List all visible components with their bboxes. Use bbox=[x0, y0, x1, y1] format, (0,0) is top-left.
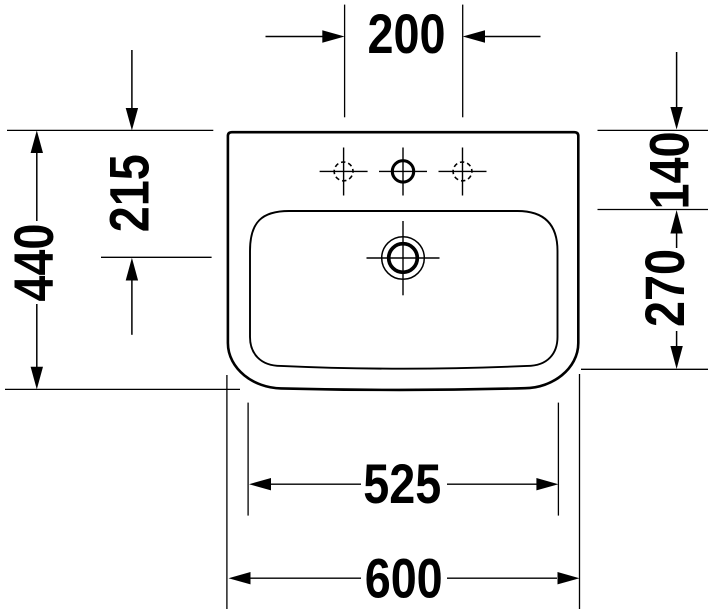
svg-text:270: 270 bbox=[633, 249, 696, 327]
svg-text:215: 215 bbox=[97, 154, 160, 232]
svg-text:140: 140 bbox=[638, 132, 701, 210]
svg-text:200: 200 bbox=[368, 2, 446, 65]
svg-text:600: 600 bbox=[365, 547, 443, 610]
svg-text:440: 440 bbox=[2, 224, 65, 302]
svg-text:525: 525 bbox=[363, 452, 441, 515]
